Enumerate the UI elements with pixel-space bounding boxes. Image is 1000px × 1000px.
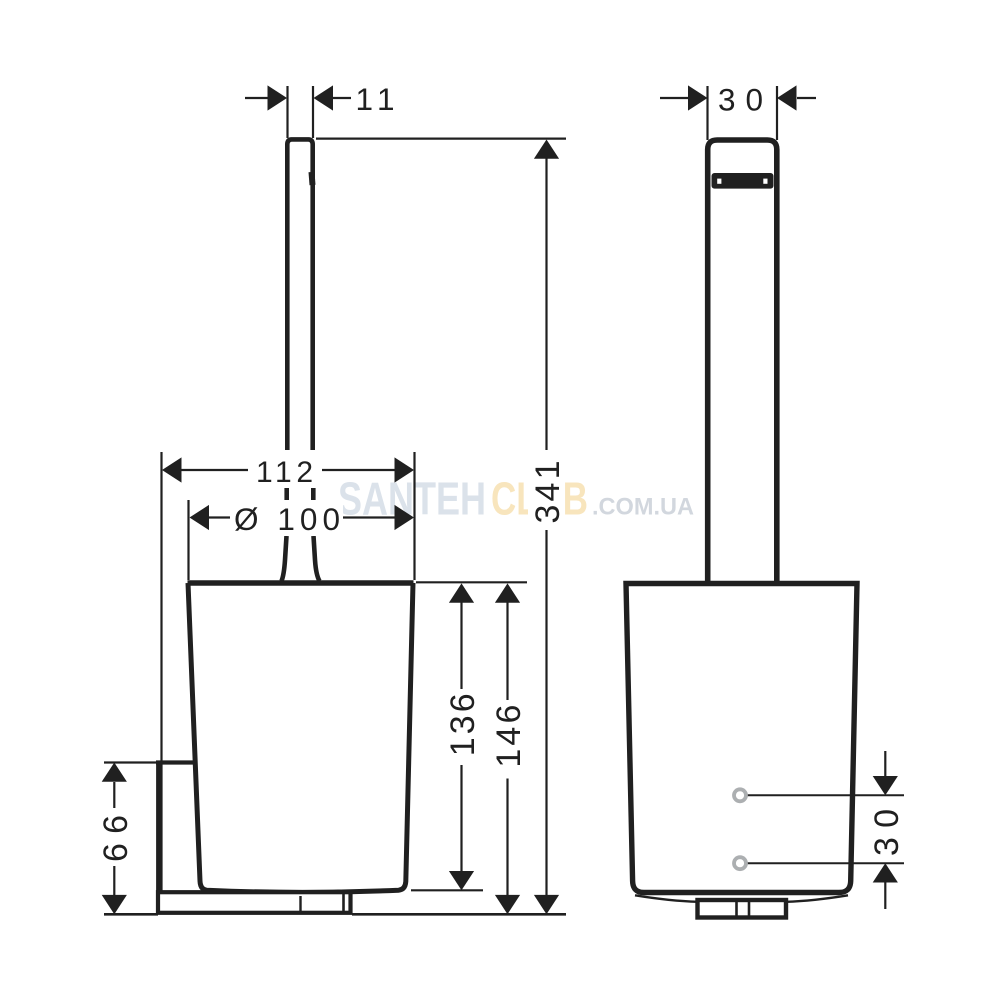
svg-text:.COM.UA: .COM.UA bbox=[592, 494, 694, 521]
svg-text:30: 30 bbox=[718, 82, 763, 118]
svg-text:112: 112 bbox=[256, 456, 313, 489]
svg-text:Ø 100: Ø 100 bbox=[234, 501, 340, 537]
svg-text:146: 146 bbox=[490, 705, 528, 768]
svg-text:30: 30 bbox=[868, 809, 906, 856]
svg-text:66: 66 bbox=[97, 815, 135, 862]
svg-text:11: 11 bbox=[356, 81, 395, 117]
svg-text:136: 136 bbox=[444, 693, 482, 756]
svg-text:341: 341 bbox=[529, 461, 567, 524]
